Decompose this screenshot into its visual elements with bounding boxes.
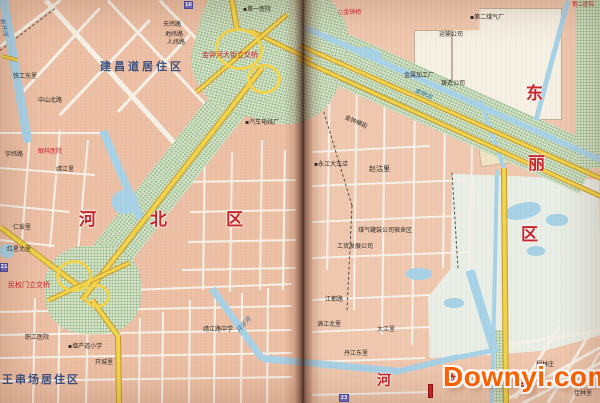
- poi-label: 金属加工厂: [404, 73, 434, 79]
- poi-label: 靖江路中学: [203, 327, 233, 333]
- residential-area-label: 王串场居住区: [2, 374, 80, 385]
- poi-label: ▪永江大车店: [314, 162, 348, 168]
- district-name-char: 区: [521, 227, 538, 244]
- district-name-char: 北: [150, 212, 167, 229]
- street-road-14: [32, 298, 36, 403]
- pond: [112, 190, 138, 214]
- landmark-label: 第二医院: [572, 3, 594, 9]
- interchange-ramp-loop: [247, 64, 281, 94]
- poi-label: 地纬路: [165, 32, 183, 38]
- scanned-atlas-page: 162123▪第一医院天纬路地纬路人纬路铁工东里中山北路▪汽车电线厂靖江里仁爱里…: [0, 0, 600, 403]
- poi-label: 仁爱里: [13, 225, 31, 231]
- district-name-char: 丽: [528, 156, 545, 173]
- landmark-label: 眼科医院: [38, 149, 62, 155]
- pond: [527, 246, 545, 256]
- district-name-char: 河: [377, 374, 391, 388]
- landmark-label: ○金钟桥: [338, 10, 361, 16]
- residential-area-label: 建昌道居住区: [100, 61, 184, 72]
- grid-marker-top: 16: [184, 1, 193, 9]
- poi-label: 满江北里: [317, 322, 341, 328]
- poi-label: 赵沽里: [369, 166, 390, 173]
- landmark-label: 金钟河大街立交桥: [202, 52, 258, 59]
- street-road-10: [77, 140, 89, 252]
- watermark-text: Downyi.com: [443, 361, 600, 393]
- highway-road-0: [80, 66, 265, 302]
- poi-label: 靖江里: [56, 167, 74, 173]
- district-name-char: 河: [79, 212, 96, 229]
- street-road-23: [0, 305, 292, 313]
- street-road-11: [0, 167, 95, 176]
- poi-label: 宇纬路: [5, 152, 23, 158]
- poi-label: ▪第二煤气厂: [470, 15, 504, 21]
- street-road-32: [185, 179, 296, 183]
- poi-label: 丹江东里: [344, 351, 368, 357]
- street-road-18: [161, 312, 164, 403]
- interchange-ramp-loop: [84, 284, 110, 308]
- poi-label: 工贸发展公司: [337, 244, 373, 250]
- highway-road-7: [115, 336, 122, 403]
- pond: [546, 214, 568, 226]
- grid-marker-bottom: 23: [339, 394, 349, 402]
- poi-label: 铸造公司: [441, 81, 465, 87]
- pond: [444, 298, 464, 308]
- poi-label: 铁工东里: [13, 74, 37, 80]
- poi-label: 江都路: [325, 297, 343, 303]
- landmark-label: 民权门立交桥: [8, 282, 50, 289]
- poi-label: 煤气罐装公司宿舍区: [358, 228, 412, 234]
- poi-label: 运输公司: [439, 32, 463, 38]
- poi-label: 开城里: [95, 360, 113, 366]
- grid-marker-left: 21: [0, 263, 8, 272]
- map-content-layer: 162123▪第一医院天纬路地纬路人纬路铁工东里中山北路▪汽车电线厂靖江里仁爱里…: [0, 0, 600, 403]
- river-canal-2: [209, 286, 265, 360]
- poi-label: 大江里: [377, 327, 395, 333]
- poi-label: ▪增产道小学: [68, 344, 102, 350]
- red-building-marker: [428, 384, 433, 398]
- poi-label: 天纬路: [163, 22, 181, 28]
- poi-label: 人纬路: [167, 40, 185, 46]
- street-road-20: [213, 298, 216, 403]
- pond: [406, 268, 432, 280]
- poi-label: 中山北路: [38, 98, 62, 104]
- poi-label: ▪汽车电线厂: [245, 120, 279, 126]
- green-strip-east-edge: [576, 0, 600, 168]
- street-road-35: [182, 267, 296, 271]
- district-name-char: 东: [526, 86, 543, 103]
- street-road-21: [240, 293, 243, 403]
- street-road-25: [0, 352, 292, 359]
- poi-label: ▪第一医院: [243, 7, 271, 13]
- street-road-7: [0, 132, 100, 134]
- street-road-19: [188, 300, 191, 403]
- poi-label: 红星北里: [7, 247, 31, 253]
- street-road-12: [0, 204, 70, 213]
- poi-label: 职工医院: [25, 335, 49, 341]
- district-name-char: 区: [226, 212, 243, 229]
